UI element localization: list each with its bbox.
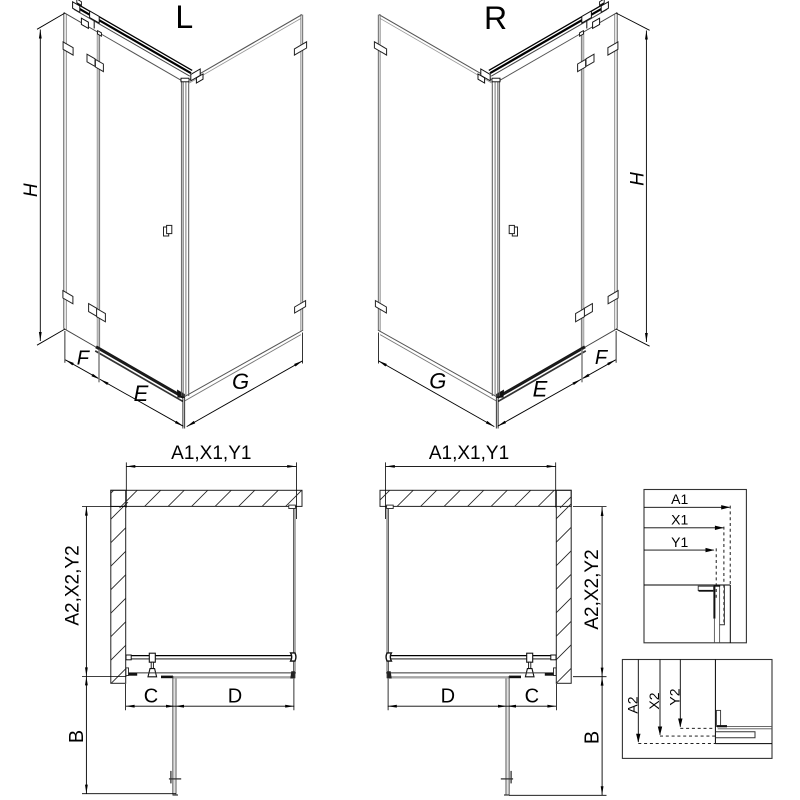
svg-text:G: G <box>232 369 249 394</box>
svg-text:A2,X2,Y2: A2,X2,Y2 <box>582 549 603 629</box>
svg-text:E: E <box>134 381 149 406</box>
svg-text:X2: X2 <box>646 692 662 709</box>
svg-text:H: H <box>628 172 649 186</box>
svg-text:X1: X1 <box>671 512 688 528</box>
svg-text:F: F <box>77 348 91 370</box>
svg-text:B: B <box>582 731 604 744</box>
svg-text:Y2: Y2 <box>666 688 682 705</box>
svg-text:C: C <box>525 686 539 708</box>
svg-text:F: F <box>595 347 609 369</box>
svg-text:D: D <box>441 686 455 708</box>
svg-text:A1,X1,Y1: A1,X1,Y1 <box>429 443 509 464</box>
svg-text:L: L <box>175 0 193 35</box>
svg-text:A2: A2 <box>624 696 640 713</box>
svg-text:E: E <box>533 377 548 402</box>
svg-text:Y1: Y1 <box>671 534 688 550</box>
svg-text:B: B <box>66 730 88 743</box>
svg-text:R: R <box>484 0 507 36</box>
svg-text:A1: A1 <box>671 491 688 507</box>
svg-text:H: H <box>21 183 42 197</box>
svg-text:G: G <box>429 369 446 394</box>
svg-text:A1,X1,Y1: A1,X1,Y1 <box>171 443 251 464</box>
svg-text:A2,X2,Y2: A2,X2,Y2 <box>63 545 84 625</box>
svg-text:D: D <box>228 686 242 708</box>
svg-text:C: C <box>144 686 158 708</box>
